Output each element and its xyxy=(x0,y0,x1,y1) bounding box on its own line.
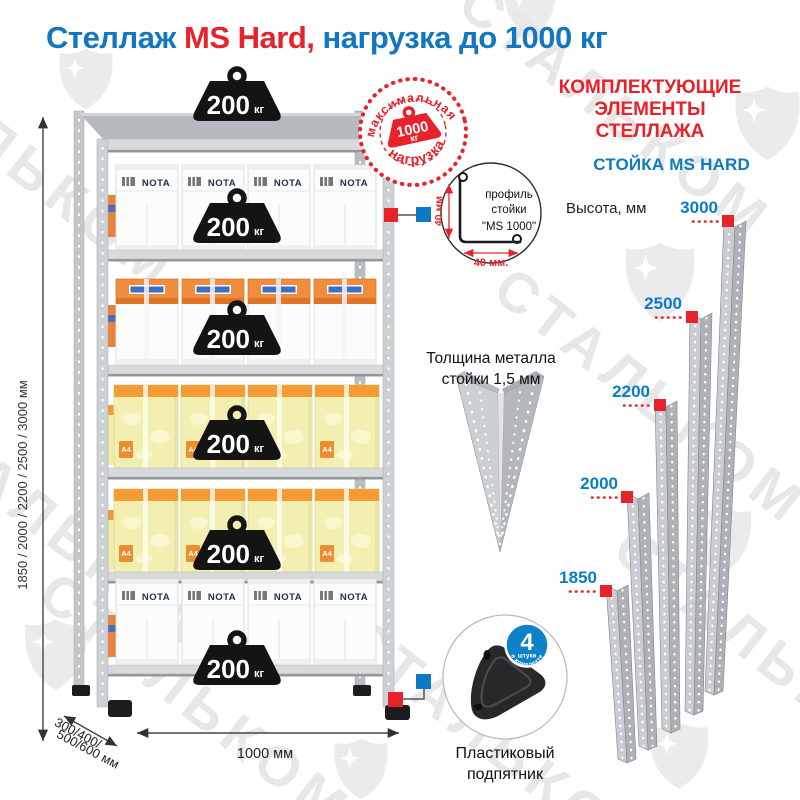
width-dimension: 1000 мм xyxy=(137,733,399,762)
thickness-line2: стойки 1,5 мм xyxy=(395,370,587,391)
foot-caption-line1: Пластиковый xyxy=(410,744,600,765)
foot-caption-line2: подпятник xyxy=(410,765,600,786)
post-marker-square xyxy=(600,585,612,597)
components-heading-line1: КОМПЛЕКТУЮЩИЕ xyxy=(540,77,760,99)
infographic-page: СТАЛЬКОМ СТАЛЬКОМ СТАЛЬКОМ СТАЛЬКОМ СТАЛ… xyxy=(0,0,800,800)
profile-label-line1: профиль xyxy=(485,189,533,201)
post-height-2000: 2000 xyxy=(580,474,618,493)
shelf-board-3 xyxy=(101,365,391,377)
height-dimension: 1850 / 2000 / 2200 / 2500 / 3000 мм xyxy=(15,117,43,741)
posts-scene: 3000 2500 2200 2000 1850 xyxy=(555,195,800,780)
width-text: 1000 мм xyxy=(237,746,293,762)
depth-dimension: 300/400/ 500/600 мм xyxy=(52,715,122,772)
shelf-board-4 xyxy=(101,468,391,480)
thickness-line1: Толщина металла xyxy=(395,349,587,370)
post-marker-square xyxy=(654,399,666,411)
plastic-foot-front-left xyxy=(108,700,132,717)
post-label-1850: 1850 xyxy=(559,568,612,597)
height-options-text: 1850 / 2000 / 2200 / 2500 / 3000 мм xyxy=(15,380,30,589)
title-part-1: Стеллаж xyxy=(46,20,176,55)
post-marker-square xyxy=(722,215,734,227)
profile-diagram: 40 мм 40 мм. профиль стойки "MS 1000" xyxy=(433,163,541,269)
profile-label-line2: стойки xyxy=(491,204,526,216)
title-part-3: нагрузка до 1000 кг xyxy=(323,20,608,55)
thickness-caption: Толщина металла стойки 1,5 мм xyxy=(395,349,587,391)
profile-dim-vertical: 40 мм xyxy=(433,196,445,226)
post-height-2200: 2200 xyxy=(612,382,650,401)
post-2200 xyxy=(655,401,680,733)
post-label-3000: 3000 xyxy=(680,198,734,227)
plastic-foot-diagram: 4 штуки в комплекте xyxy=(443,615,567,739)
post-height-1850: 1850 xyxy=(559,568,597,587)
callout-red-square xyxy=(388,692,403,707)
profile-dim-horizontal: 40 мм. xyxy=(474,257,509,269)
post-label-2500: 2500 xyxy=(644,294,698,323)
post-3000 xyxy=(705,221,746,695)
post-label-2200: 2200 xyxy=(612,382,666,411)
corner-post-image xyxy=(456,371,544,552)
post-height-2500: 2500 xyxy=(644,294,682,313)
post-height-3000: 3000 xyxy=(680,198,718,217)
components-heading: КОМПЛЕКТУЮЩИЕ ЭЛЕМЕНТЫ СТЕЛЛАЖА xyxy=(540,77,760,143)
quantity-text1: штуки xyxy=(518,653,537,660)
callout-red-square xyxy=(384,208,398,222)
title-part-2: MS Hard, xyxy=(184,20,314,55)
components-heading-line2: ЭЛЕМЕНТЫ СТЕЛЛАЖА xyxy=(540,99,760,143)
post-label-2000: 2000 xyxy=(580,474,633,503)
page-title: Стеллаж MS Hard, нагрузка до 1000 кг xyxy=(46,20,607,56)
post-1850 xyxy=(606,585,636,763)
plastic-foot-front-right xyxy=(385,705,410,720)
profile-label-line3: "MS 1000" xyxy=(482,221,536,233)
shelf-board-2 xyxy=(101,250,391,262)
rack-scene: 200 кг NOTA xyxy=(0,55,470,800)
post-marker-square xyxy=(621,491,633,503)
plastic-foot-caption: Пластиковый подпятник xyxy=(410,744,600,786)
quantity-badge: 4 штуки в комплекте xyxy=(506,624,549,669)
post-marker-square xyxy=(686,311,698,323)
